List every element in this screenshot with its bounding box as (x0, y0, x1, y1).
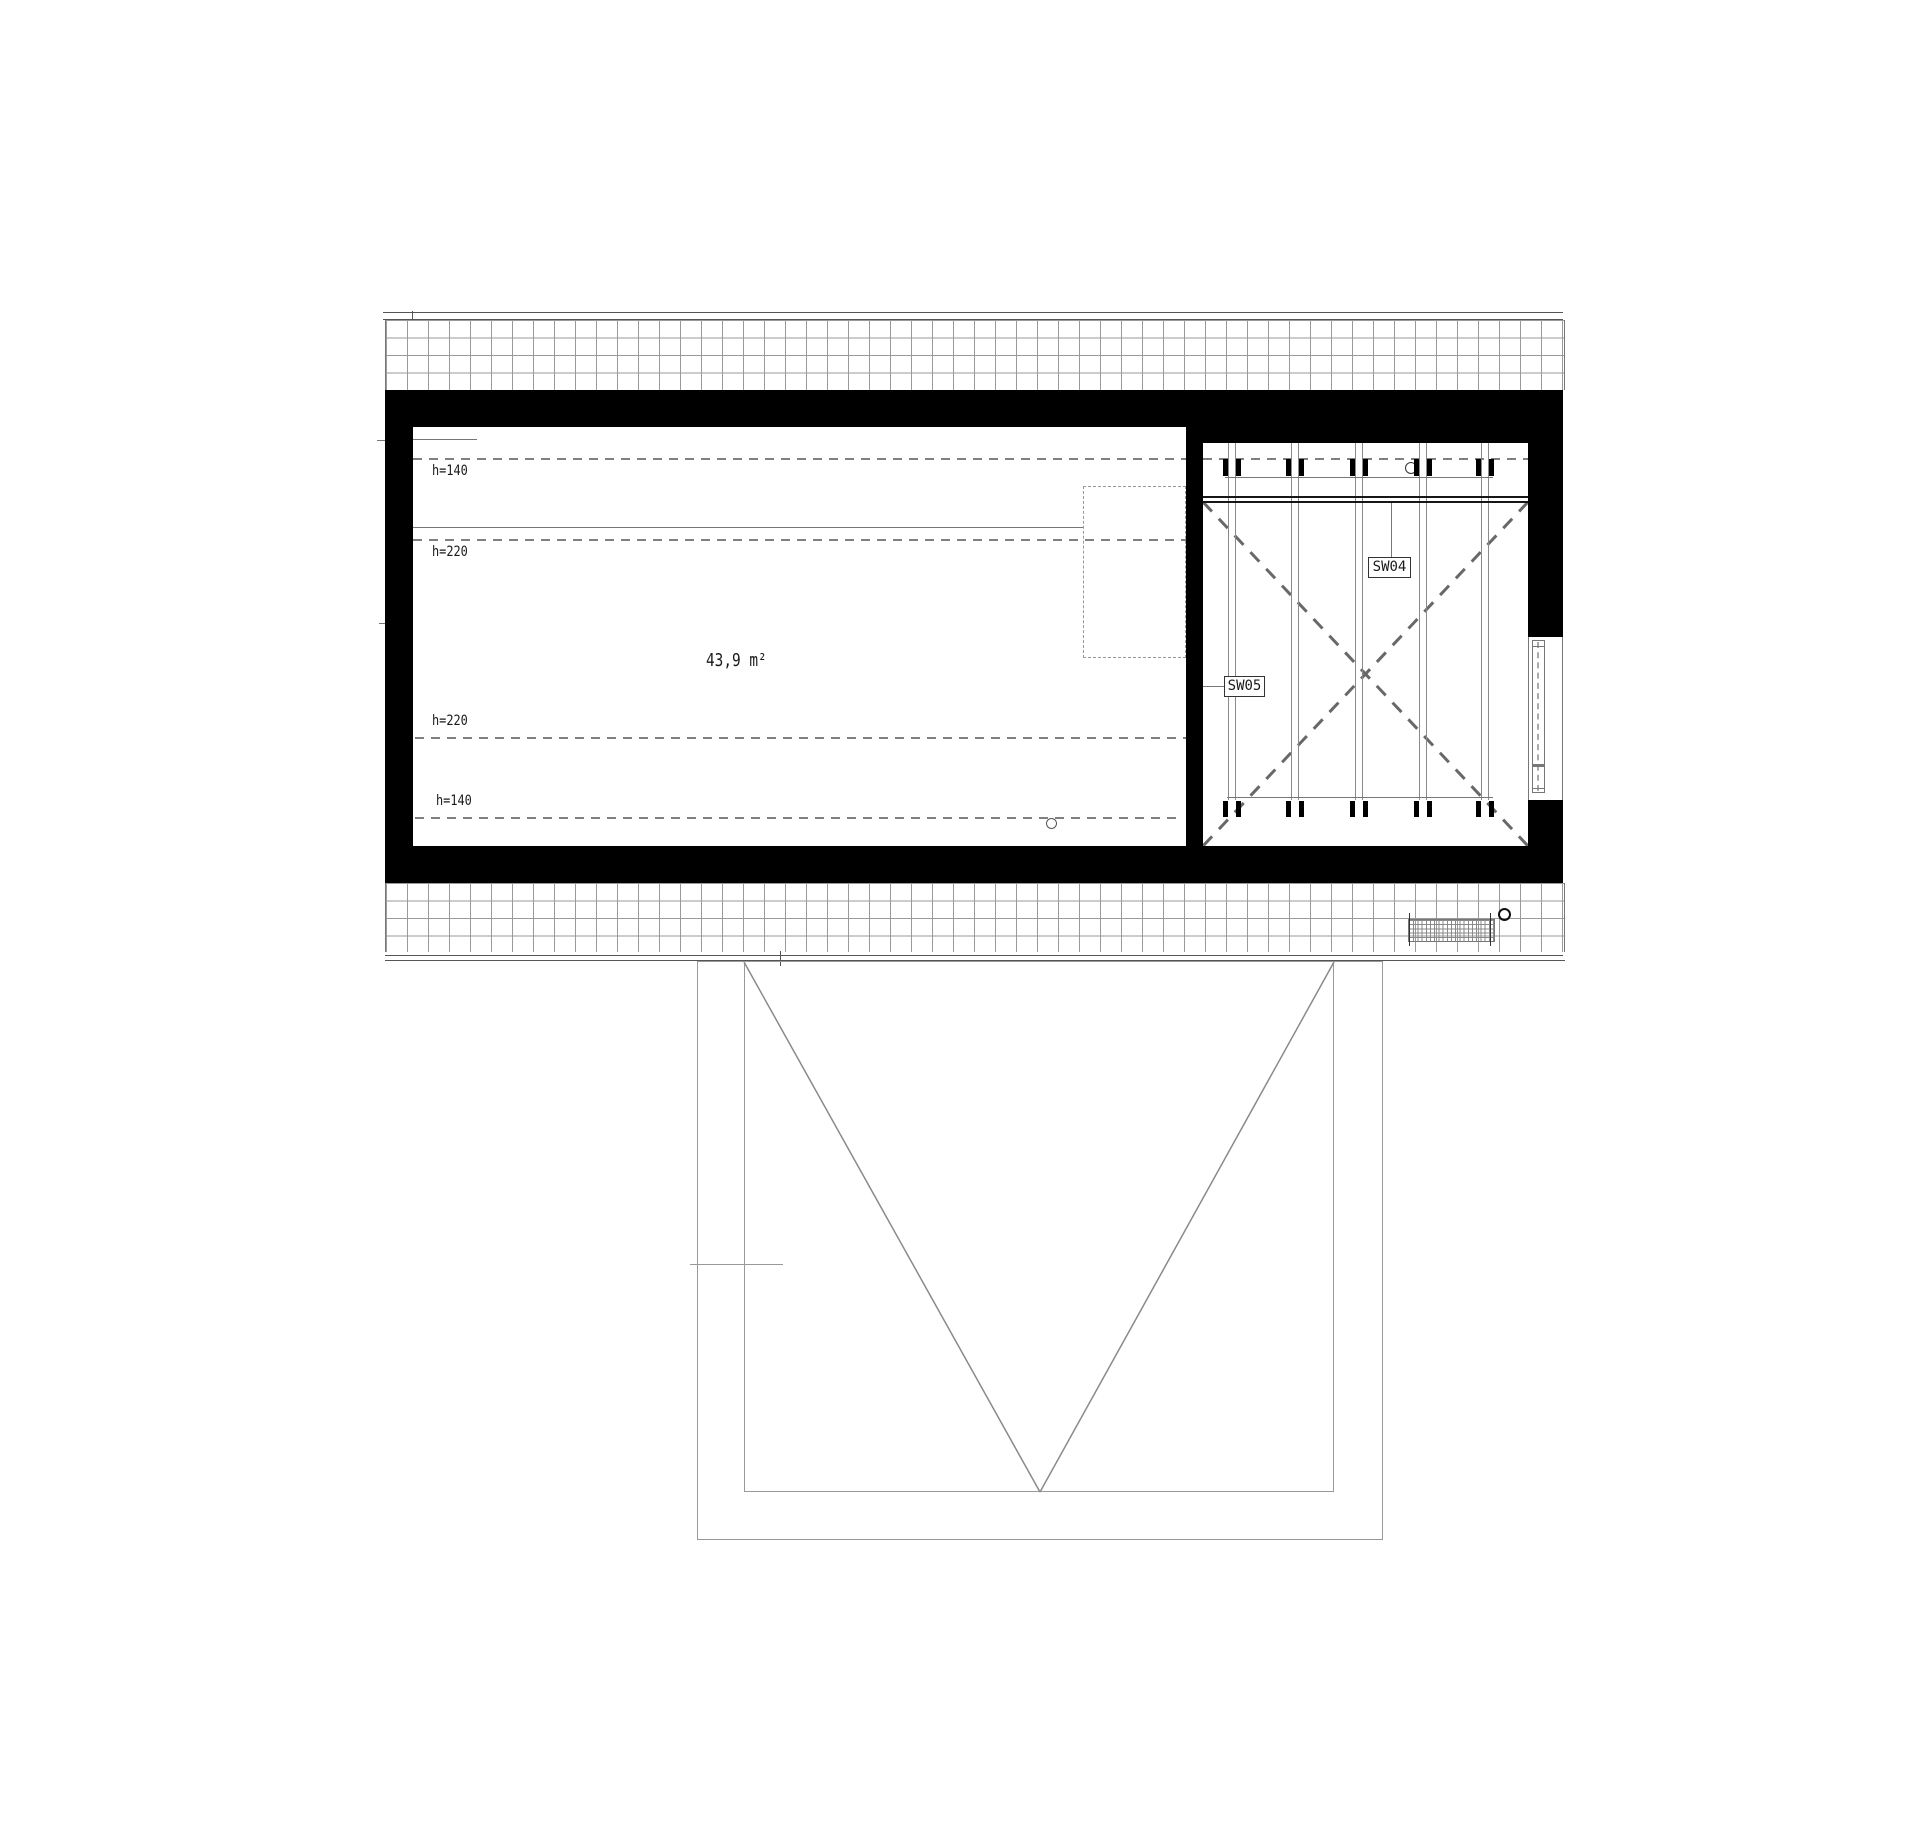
wall-left (385, 427, 413, 846)
chimney-end-tick (1409, 913, 1410, 946)
beam-anchor-tick (1236, 459, 1241, 476)
chimney-hatch-rect (1408, 919, 1495, 942)
beam-anchor-tick (1223, 801, 1228, 817)
chimney-end-tick (1490, 913, 1491, 946)
wall-interior (1186, 427, 1203, 846)
beam-anchor-tick (1223, 459, 1228, 476)
floor-plan-canvas: h=140 h=220 h=220 h=140 43,9 m² SW04 SW0… (0, 0, 1925, 1830)
beam-anchor-tick (1286, 459, 1291, 476)
beam-anchor-tick (1363, 459, 1368, 476)
diagonal-linework (0, 0, 1925, 1830)
sw05-leader-line (1203, 686, 1224, 687)
overhead-dashed-rect (1083, 486, 1186, 658)
height-line-h140-top (413, 458, 1186, 460)
knee-wall-line (413, 527, 1083, 528)
wall-top (385, 390, 1563, 427)
beam-anchor-tick (1476, 801, 1481, 817)
height-label-h220-bottom: h=220 (432, 713, 468, 730)
beam-anchor-tick (1427, 801, 1432, 817)
anchor-row-line-bottom (1227, 797, 1493, 798)
height-label-h220-top: h=220 (432, 544, 468, 561)
left-wall-tick (377, 440, 385, 441)
wall-bottom (385, 846, 1563, 883)
height-line-h140-bottom (415, 817, 1180, 819)
roof-valley-line-left (744, 962, 1040, 1492)
beam-anchor-tick (1299, 459, 1304, 476)
wall-plate-line (413, 439, 477, 440)
beam-anchor-tick (1299, 801, 1304, 817)
window-strip-rung (1532, 764, 1545, 767)
wall-right-lower (1528, 800, 1563, 846)
window-strip-rung (1532, 646, 1545, 647)
beam-anchor-tick (1489, 801, 1494, 817)
beam-anchor-tick (1414, 801, 1419, 817)
beam-anchor-tick (1236, 801, 1241, 817)
height-line-h220-bottom (415, 737, 1186, 739)
beam-anchor-tick (1489, 459, 1494, 476)
beam-anchor-tick (1414, 459, 1419, 476)
beam-anchor-tick (1286, 801, 1291, 817)
beam-anchor-tick (1476, 459, 1481, 476)
beam-anchor-tick (1350, 801, 1355, 817)
panel-label-sw05: SW05 (1224, 676, 1265, 697)
beam-anchor-tick (1427, 459, 1432, 476)
beam-anchor-tick (1363, 801, 1368, 817)
wall-top-right-extension (1186, 427, 1563, 443)
plan-right-edge-line (1562, 637, 1563, 800)
beam-anchor-tick (1350, 459, 1355, 476)
window-strip-rung (1532, 788, 1545, 789)
window-strip-dashed-core (1537, 642, 1539, 791)
height-line-h220-top (413, 539, 1186, 541)
height-label-h140-bottom: h=140 (436, 793, 472, 810)
floor-drain-circle (1046, 818, 1057, 829)
ridge-beam-double-line (1203, 496, 1528, 503)
anchor-row-line-top (1225, 477, 1493, 478)
vent-circle-bold (1498, 908, 1511, 921)
room-area-label: 43,9 m² (706, 650, 767, 672)
panel-label-sw04: SW04 (1368, 557, 1411, 578)
roof-valley-line-right (1040, 962, 1334, 1492)
wall-right-upper (1528, 443, 1563, 637)
sw04-leader-line (1391, 503, 1392, 557)
wall-opening-edge-line (1528, 637, 1529, 800)
height-label-h140-top: h=140 (432, 463, 468, 480)
